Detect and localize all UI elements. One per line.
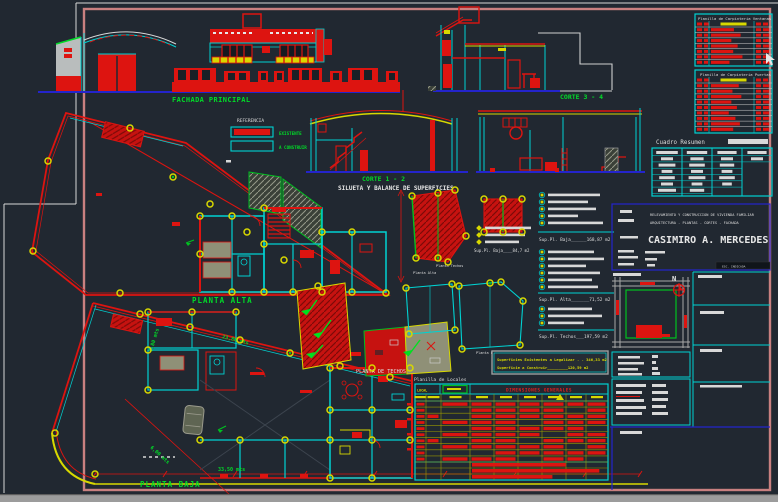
corte-1-2-label: CORTE 1 - 2 [362,175,405,183]
superficies-summary-box [492,351,608,374]
cuadro-resumen-title: Cuadro Resumen [656,140,705,146]
summary-line-1: Superficies Existentes a Legalizar . . 3… [497,357,607,362]
bottom-edge-line [0,494,778,495]
cuadro-resumen-tab [728,139,768,144]
planta-alta-label: PLANTA ALTA [192,296,253,305]
dim-33-50: 33,50 mts [218,467,245,473]
sup-alta-total: Sup.Pl. Alta_______71,52 m2 [539,297,611,303]
north-label: N [672,275,676,283]
planta-baja-label: PLANTA BAJA [140,480,201,489]
locales-col1-header: LOCAL [417,389,427,393]
planilla-locales-title: Planilla de Locales [414,377,467,383]
locales-header: DIMENSIONES GENERALES [506,388,572,394]
corte-3-4-label: CORTE 3 - 4 [560,93,603,101]
sup-baja-total: Sup.Pl. Baja______168,87 m2 [539,237,611,243]
referencia-construir-label: A CONSTRUIR [279,145,307,150]
title-line-1: RELEVAMIENTO Y CONSTRUCCION DE VIVIENDA … [650,213,755,217]
bottom-edge-strip [0,495,778,502]
puertas-title: Planilla de Carpinteria Puertas [700,72,771,77]
title-line-2: ARQUITECTURA - PLANTAS - CORTES - FACHAD… [650,221,740,225]
summary-line-2: Superficie a Construir_________120,59 m2 [497,365,588,370]
referencia-existente-label: EXISTENTE [279,131,302,136]
planta-techos-label: PLANTA DE TECHOS [356,369,406,375]
referencia-title: REFERENCIA [237,118,264,124]
sup-baja-small-total: Sup.Pl. Baja____84,7 m2 [474,248,530,253]
ventanas-title: Planilla de Carpinteria Ventanas [698,16,771,21]
cad-canvas[interactable]: FACHADA PRINCIPAL CORTE 3 - 4 CORTE 1 - … [0,0,778,502]
owner-name: CASIMIRO A. MERCEDES [648,235,768,246]
fachada-principal-label: FACHADA PRINCIPAL [172,96,250,104]
title-esc-note: ESC. INDICADA [722,265,746,269]
cad-sheet[interactable]: FACHADA PRINCIPAL CORTE 3 - 4 CORTE 1 - … [0,0,778,502]
silueta-alta-label: Planta Alta [413,271,436,275]
sup-techos-total: Sup.Pl. Techos___197,59 m2 [539,334,608,340]
